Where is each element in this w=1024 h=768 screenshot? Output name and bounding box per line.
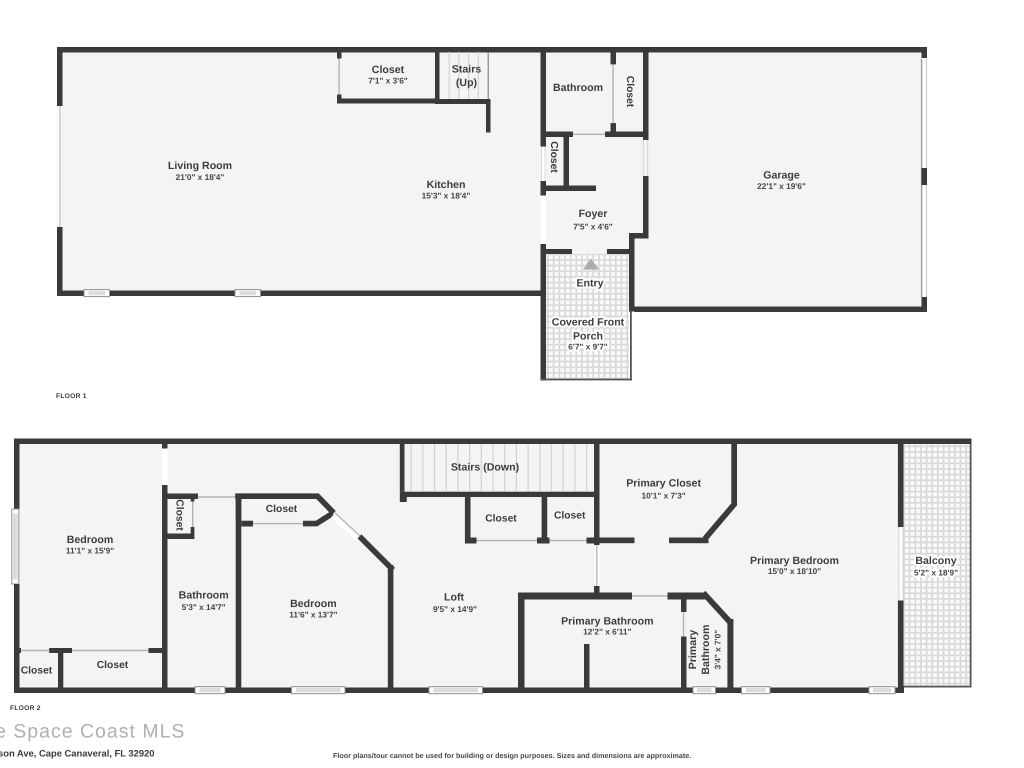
svg-text:Closet: Closet: [21, 666, 53, 677]
svg-text:Bedroom: Bedroom: [290, 598, 337, 610]
svg-text:Primary: Primary: [687, 630, 699, 670]
svg-text:Closet: Closet: [97, 660, 129, 671]
svg-text:Bathroom: Bathroom: [700, 625, 712, 675]
svg-text:Stairs: Stairs: [452, 63, 482, 75]
svg-text:Primary Bedroom: Primary Bedroom: [750, 555, 839, 567]
svg-text:Covered Front: Covered Front: [552, 316, 625, 328]
svg-text:21'0" x 18'4": 21'0" x 18'4": [176, 172, 225, 182]
svg-text:12'2" x 6'11": 12'2" x 6'11": [583, 627, 631, 637]
svg-text:Closet: Closet: [485, 513, 517, 524]
svg-text:Closet: Closet: [266, 504, 298, 515]
svg-text:3'4" x 7'0": 3'4" x 7'0": [712, 630, 722, 670]
svg-text:Garage: Garage: [763, 169, 800, 181]
svg-text:Balcony: Balcony: [915, 555, 956, 567]
svg-text:Loft: Loft: [444, 591, 464, 603]
svg-text:15'3" x 18'4": 15'3" x 18'4": [422, 190, 471, 200]
svg-text:Closet: Closet: [624, 76, 635, 108]
svg-text:FLOOR 2: FLOOR 2: [10, 705, 41, 712]
svg-text:Floor plans/tour cannot be use: Floor plans/tour cannot be used for buil…: [333, 751, 691, 760]
svg-text:Foyer: Foyer: [579, 208, 608, 220]
svg-text:Primary Closet: Primary Closet: [626, 477, 701, 489]
svg-text:e Space Coast MLS: e Space Coast MLS: [0, 721, 185, 743]
svg-text:Entry: Entry: [576, 277, 603, 289]
svg-text:Closet: Closet: [372, 64, 405, 76]
svg-text:son Ave, Cape Canaveral, FL 32: son Ave, Cape Canaveral, FL 32920: [0, 748, 155, 759]
svg-text:Stairs (Down): Stairs (Down): [451, 461, 519, 473]
svg-text:Closet: Closet: [548, 141, 559, 173]
svg-text:FLOOR 1: FLOOR 1: [56, 393, 87, 400]
svg-text:6'7" x 9'7": 6'7" x 9'7": [568, 342, 608, 352]
svg-text:10'1" x 7'3": 10'1" x 7'3": [642, 491, 686, 501]
svg-text:11'6" x 13'7": 11'6" x 13'7": [289, 609, 337, 619]
svg-text:5'3" x 14'7": 5'3" x 14'7": [182, 602, 226, 612]
svg-text:(Up): (Up): [456, 77, 477, 89]
svg-text:Closet: Closet: [174, 499, 185, 531]
svg-text:Closet: Closet: [554, 511, 586, 522]
svg-text:22'1" x 19'6": 22'1" x 19'6": [757, 181, 806, 191]
svg-text:9'5" x 14'9": 9'5" x 14'9": [433, 604, 477, 614]
svg-text:Living Room: Living Room: [168, 160, 232, 172]
svg-text:Bathroom: Bathroom: [553, 82, 603, 94]
svg-text:11'1" x 15'9": 11'1" x 15'9": [66, 546, 114, 556]
svg-text:Bathroom: Bathroom: [179, 589, 229, 601]
svg-text:5'2" x 18'9": 5'2" x 18'9": [914, 568, 958, 578]
svg-text:Bedroom: Bedroom: [67, 534, 114, 546]
svg-text:15'0" x 18'10": 15'0" x 18'10": [768, 566, 821, 576]
svg-text:7'5" x 4'6": 7'5" x 4'6": [573, 221, 613, 231]
svg-text:7'1" x 3'6": 7'1" x 3'6": [368, 75, 408, 85]
